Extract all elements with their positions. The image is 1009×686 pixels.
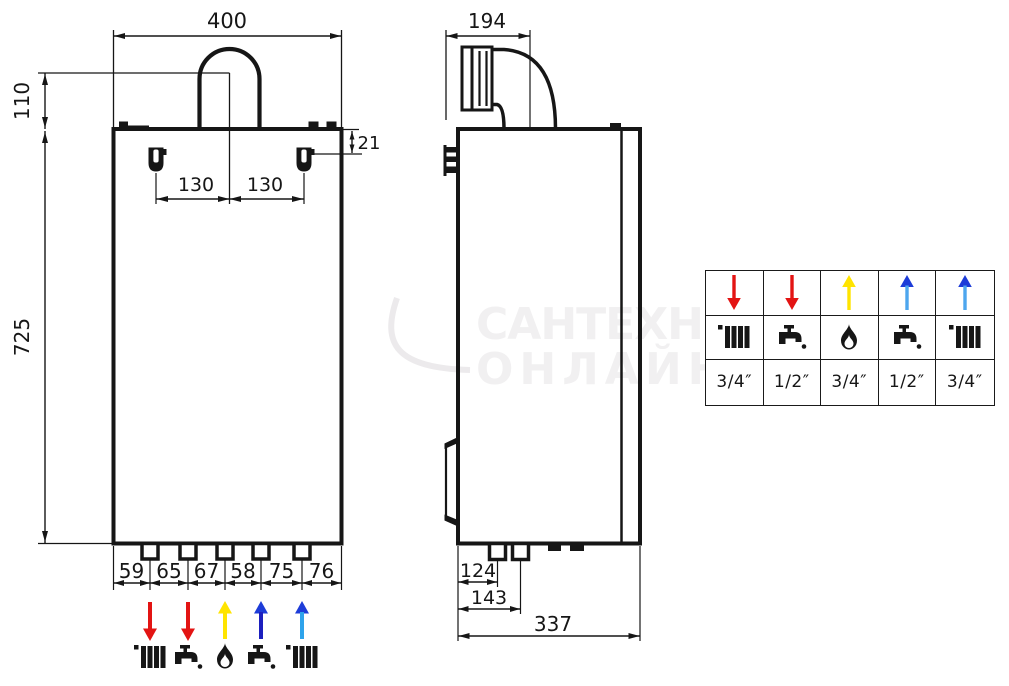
flue-height-label: 110 [10, 82, 34, 120]
connection-size-label: 3/4″ [947, 372, 983, 392]
side-bottom-stubs [490, 544, 529, 560]
connection-size-label: 1/2″ [774, 372, 810, 392]
flow-down-arrow-head [143, 629, 157, 642]
radiator-icon [718, 325, 750, 348]
hook-spacing-right-label: 130 [247, 174, 283, 196]
table-medium-icon-cell-4 [879, 316, 937, 361]
table-size-cell-1: 3/4″ [706, 360, 764, 405]
dim-hook-drop: 21 [311, 130, 380, 155]
flow-up-arrow-shaft [905, 286, 908, 311]
side-depth-label: 337 [534, 612, 572, 636]
flow-up-arrow-head [254, 601, 268, 614]
radiator-icon [134, 645, 166, 668]
flow-down-arrow-shaft [148, 602, 152, 629]
radiator-icon [286, 645, 318, 668]
bottom-port-legend [134, 601, 318, 669]
hook-drop-label: 21 [358, 133, 381, 154]
flow-down-arrow-shaft [790, 275, 793, 300]
tap-icon [894, 325, 921, 349]
port-cold-water-inlet [248, 601, 275, 669]
flame-icon [217, 642, 233, 669]
port-gas-inlet [217, 601, 233, 669]
table-flow-arrow-cell-2 [764, 271, 822, 316]
table-flow-arrow-cell-4 [879, 271, 937, 316]
side-top-block [610, 123, 621, 130]
flow-up-arrow-shaft [963, 286, 966, 311]
table-flow-arrow-cell-1 [706, 271, 764, 316]
hanging-hook-right [297, 148, 315, 172]
flow-up-arrow-shaft [848, 286, 851, 311]
side-conn1-label: 124 [460, 560, 496, 582]
connection-size-label: 3/4″ [831, 372, 867, 392]
flow-down-arrow-head [785, 298, 799, 310]
spacing-5-label: 75 [269, 559, 294, 583]
table-medium-icon-cell-3 [821, 316, 879, 361]
connection-size-label: 1/2″ [889, 372, 925, 392]
tap-icon [779, 325, 806, 349]
flow-up-arrow-head [900, 275, 914, 287]
side-body-outline [458, 129, 640, 544]
table-size-cell-5: 3/4″ [936, 360, 994, 405]
flow-up-arrow-head [295, 601, 309, 614]
dim-side-conn1: 124 [458, 560, 498, 587]
wall-bracket-top [444, 145, 459, 176]
radiator-icon [949, 325, 981, 348]
connection-size-label: 3/4″ [716, 372, 752, 392]
flow-up-arrow-shaft [300, 612, 304, 639]
hanging-hook-left [149, 148, 167, 172]
connection-table: 3/4″ 1/2″ 3/4″ 1/2″ 3/4″ [705, 270, 995, 406]
table-flow-arrow-cell-5 [936, 271, 994, 316]
table-size-cell-2: 1/2″ [764, 360, 822, 405]
tap-icon [248, 645, 275, 669]
flow-down-arrow-head [727, 298, 741, 310]
flow-down-arrow-head [181, 629, 195, 642]
port-dhw-outlet [175, 602, 202, 669]
dim-flue-height: 110 [10, 73, 230, 129]
wall-bracket-bottom [445, 437, 459, 527]
flame-icon [841, 323, 857, 350]
dim-front-height: 725 [10, 131, 113, 544]
side-view: 194 124 143 [444, 9, 641, 641]
hook-spacing-left-label: 130 [178, 174, 214, 196]
dim-front-width: 400 [114, 9, 342, 127]
spacing-6-label: 76 [309, 559, 334, 583]
spacing-4-label: 58 [230, 559, 255, 583]
table-medium-icon-cell-5 [936, 316, 994, 361]
flow-up-arrow-shaft [259, 612, 263, 639]
spacing-1-label: 59 [119, 559, 144, 583]
flow-down-arrow-shaft [733, 275, 736, 300]
flue-offset-label: 194 [468, 9, 506, 33]
port-heating-flow [134, 602, 166, 668]
table-medium-icon-cell-1 [706, 316, 764, 361]
spacing-3-label: 67 [194, 559, 219, 583]
front-width-label: 400 [207, 9, 247, 33]
boiler-dimensions-page: САНТЕХНИКА ОНЛАЙН [0, 0, 1009, 686]
table-size-cell-4: 1/2″ [879, 360, 937, 405]
table-size-cell-3: 3/4″ [821, 360, 879, 405]
front-bottom-stubs [142, 544, 310, 560]
flow-up-arrow-head [958, 275, 972, 287]
flow-up-arrow-head [842, 275, 856, 287]
front-height-label: 725 [10, 318, 34, 356]
table-medium-icon-cell-2 [764, 316, 822, 361]
flow-down-arrow-shaft [186, 602, 190, 629]
front-view: 400 110 725 [10, 9, 380, 590]
tap-icon [175, 645, 202, 669]
side-flue-elbow [462, 47, 556, 129]
side-conn2-label: 143 [471, 587, 507, 609]
spacing-2-label: 65 [156, 559, 181, 583]
flow-up-arrow-head [218, 601, 232, 614]
table-flow-arrow-cell-3 [821, 271, 879, 316]
port-heating-return [286, 601, 318, 668]
flow-up-arrow-shaft [223, 612, 227, 639]
front-body-outline [114, 129, 342, 544]
